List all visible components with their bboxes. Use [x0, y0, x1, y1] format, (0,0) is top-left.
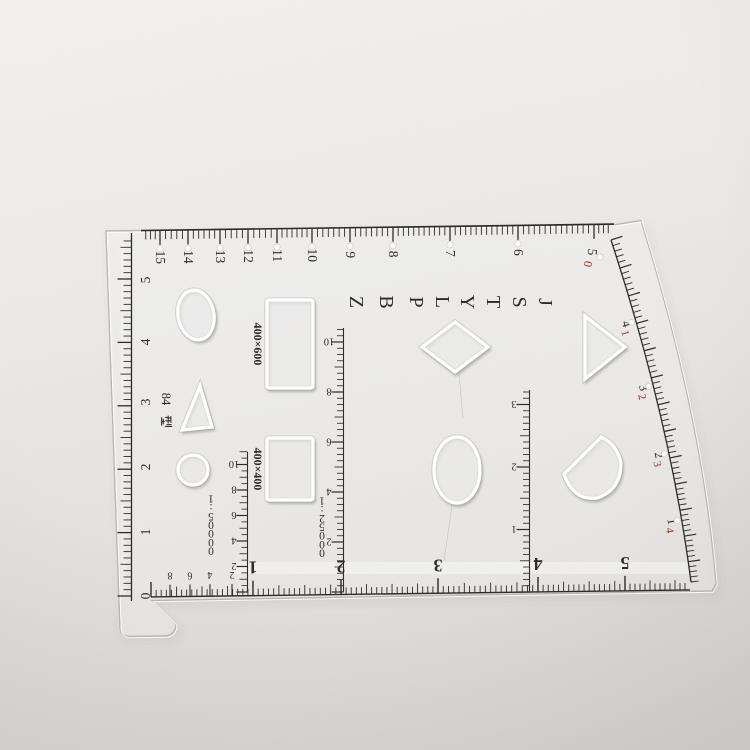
punch-hole: [674, 518, 680, 524]
oval-cutout-center: [434, 437, 480, 503]
v-scale-number: 4: [231, 535, 237, 546]
square-cutout-400x400: [267, 438, 313, 500]
code-letter: J: [534, 298, 556, 306]
bottom-major-number: 5: [621, 553, 630, 573]
v-scale-number: 8: [326, 386, 331, 397]
punch-hole: [347, 243, 353, 249]
top-scale-number: 8: [386, 251, 401, 258]
punch-hole: [447, 242, 453, 248]
v-scale-number: 2: [511, 461, 516, 472]
top-scale-number: 10: [305, 248, 320, 262]
punch-hole: [629, 319, 635, 325]
punch-hole: [597, 254, 603, 260]
punch-hole: [515, 241, 521, 247]
scale-label-50000-char: 0: [208, 545, 214, 557]
v-scale-number: 10: [324, 336, 335, 347]
top-scale-number: 12: [241, 249, 256, 263]
photo-scene: 15141312111098765054321084ZBPLYTSJ400×60…: [0, 0, 750, 750]
punch-hole: [390, 242, 396, 248]
model-label-digits: 84: [159, 393, 173, 406]
square-cutout-label: 400×400: [251, 448, 265, 491]
punch-hole: [309, 244, 315, 250]
scale-label-25000-char: 0: [319, 547, 325, 559]
top-scale-number: 9: [343, 251, 358, 258]
punch-hole: [157, 246, 163, 252]
v-scale-number: 1: [511, 523, 516, 534]
v-scale-number: 6: [326, 436, 331, 447]
bottom-minor-number: 4: [208, 569, 213, 580]
v-scale-number: 6: [231, 509, 236, 520]
code-letter: Z: [345, 296, 367, 308]
left-scale-number: 2: [138, 464, 153, 471]
bottom-major-number: 3: [434, 555, 443, 575]
code-letter: Y: [456, 295, 478, 309]
left-scale-number: 3: [138, 398, 153, 405]
v-scale-number: 3: [511, 398, 516, 409]
bottom-minor-number: 6: [188, 569, 193, 580]
left-scale-number: 5: [138, 276, 153, 283]
top-scale-number: 11: [270, 249, 285, 262]
top-scale-number: 15: [153, 251, 168, 265]
bottom-minor-number: 8: [168, 570, 173, 581]
template-photo: 15141312111098765054321084ZBPLYTSJ400×60…: [0, 0, 750, 750]
punch-hole: [217, 245, 223, 251]
circle-cutout-small: [178, 455, 208, 485]
top-scale-number: 7: [443, 250, 458, 257]
v-scale-number: 2: [231, 560, 236, 571]
code-letter: P: [405, 296, 427, 307]
rect-cutout-label: 400×600: [251, 323, 265, 366]
bottom-major-number: 1: [249, 558, 258, 578]
top-scale-number: 13: [213, 250, 228, 264]
left-bevel-reflection: [121, 240, 126, 596]
v-scale-number: 4: [326, 486, 332, 497]
v-scale-number: 10: [229, 458, 240, 469]
rectangle-cutout-400x600: [267, 300, 313, 388]
code-letter: B: [375, 295, 397, 308]
bottom-major-number: 4: [534, 554, 543, 574]
v-scale-number: 2: [326, 536, 331, 547]
punch-hole: [661, 451, 667, 457]
left-scale-number: 1: [138, 529, 153, 536]
v-scale-number: 8: [231, 484, 236, 495]
code-letter: S: [508, 296, 530, 307]
punch-hole: [185, 245, 191, 251]
punch-hole: [646, 383, 652, 389]
code-letter: T: [482, 296, 504, 308]
punch-hole: [245, 244, 251, 250]
top-scale-number: 6: [511, 249, 526, 256]
punch-hole: [274, 244, 280, 250]
left-scale-number: 4: [138, 338, 153, 345]
top-scale-number: 14: [181, 250, 196, 264]
code-letter: L: [431, 296, 453, 308]
